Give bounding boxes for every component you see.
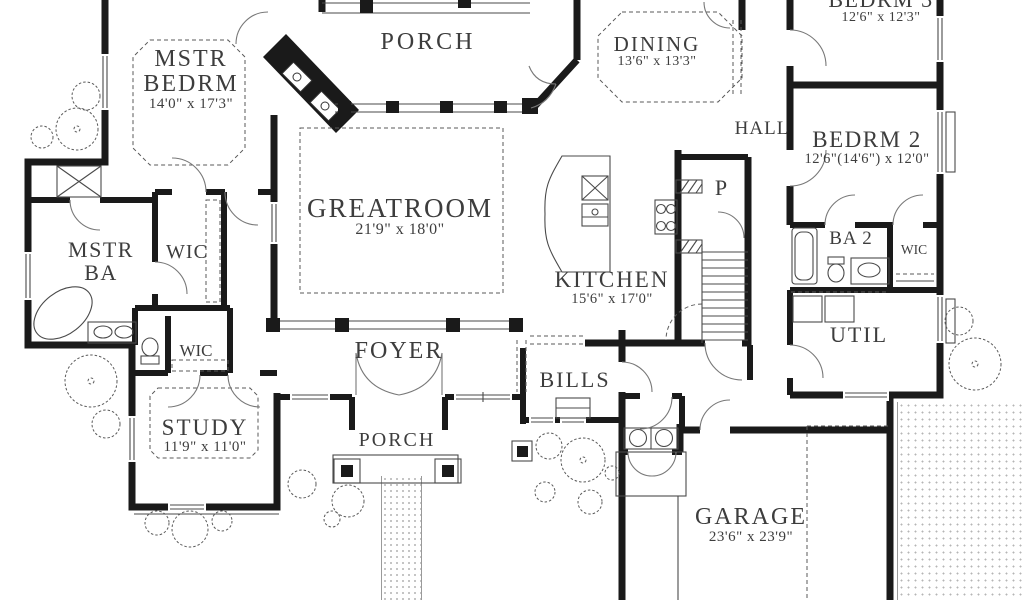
mstr-bedrm-name-line2: BEDRM <box>143 72 238 97</box>
room-label-hall: HALL <box>735 119 790 139</box>
room-label-mstr-bedrm: MSTR BEDRM 14'0" x 17'3" <box>143 47 238 113</box>
room-label-kitchen: KITCHEN 15'6" x 17'0" <box>555 268 670 307</box>
room-label-greatroom: GREATROOM 21'9" x 18'0" <box>307 194 493 239</box>
floor-plan-canvas: PORCH DINING 13'6" x 13'3" BEDRM 3 12'6"… <box>0 0 1024 600</box>
kitchen-dims: 15'6" x 17'0" <box>555 292 670 307</box>
room-label-util: UTIL <box>830 323 888 346</box>
mstr-bedrm-name-line1: MSTR <box>143 47 238 72</box>
room-label-pantry: P <box>715 176 727 199</box>
bedrm2-dims: 12'6"(14'6") x 12'0" <box>804 152 929 167</box>
mstr-bedrm-dims: 14'0" x 17'3" <box>143 97 238 113</box>
room-label-bills: BILLS <box>539 368 610 391</box>
dining-dims: 13'6" x 13'3" <box>614 55 701 70</box>
room-label-wic-right: WIC <box>901 243 927 257</box>
bedrm3-dims: 12'6" x 12'3" <box>828 11 933 26</box>
room-label-wic-master-lower: WIC <box>179 342 212 360</box>
room-label-porch-top: PORCH <box>380 30 475 55</box>
room-label-dining: DINING 13'6" x 13'3" <box>614 33 701 70</box>
mstr-ba-name-line1: MSTR <box>68 238 134 261</box>
dining-name: DINING <box>614 33 701 55</box>
bedrm2-name: BEDRM 2 <box>804 128 929 152</box>
room-label-bedrm2: BEDRM 2 12'6"(14'6") x 12'0" <box>804 128 929 167</box>
study-dims: 11'9" x 11'0" <box>162 440 249 456</box>
room-label-bedrm3: BEDRM 3 12'6" x 12'3" <box>828 0 933 26</box>
room-label-foyer: FOYER <box>355 339 444 364</box>
room-label-garage: GARAGE 23'6" x 23'9" <box>695 505 807 546</box>
room-label-porch-bottom: PORCH <box>359 430 436 451</box>
room-label-wic-master-upper: WIC <box>166 242 208 263</box>
greatroom-name: GREATROOM <box>307 194 493 222</box>
mstr-ba-name-line2: BA <box>68 261 134 284</box>
room-label-study: STUDY 11'9" x 11'0" <box>162 416 249 456</box>
garage-dims: 23'6" x 23'9" <box>695 530 807 546</box>
staircase <box>702 248 748 343</box>
room-label-mstr-ba: MSTR BA <box>68 238 134 284</box>
garage-name: GARAGE <box>695 505 807 530</box>
study-name: STUDY <box>162 416 249 440</box>
greatroom-dims: 21'9" x 18'0" <box>307 222 493 239</box>
room-label-ba2: BA 2 <box>829 229 873 249</box>
kitchen-name: KITCHEN <box>555 268 670 292</box>
